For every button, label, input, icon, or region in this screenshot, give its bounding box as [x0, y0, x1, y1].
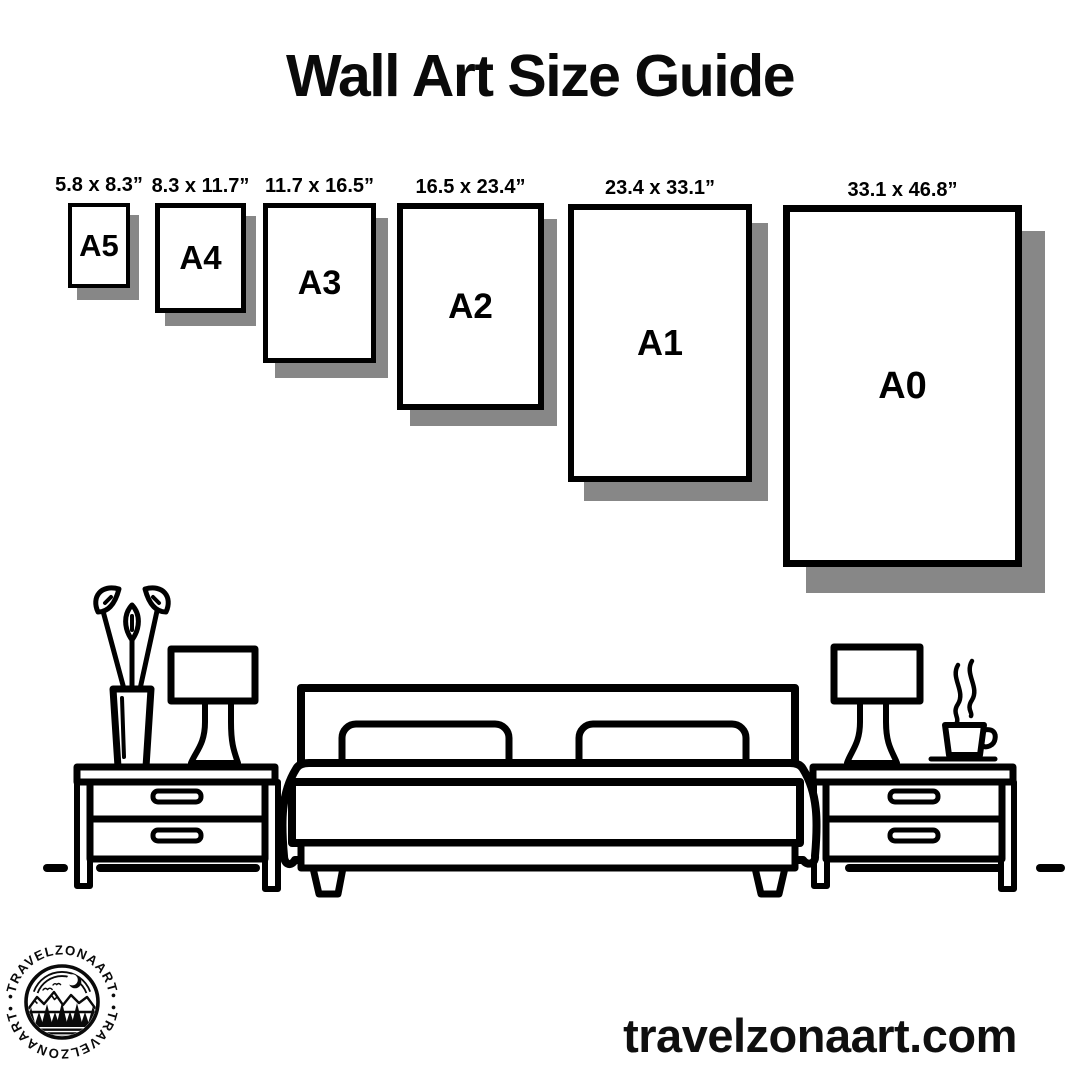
- size-frames: 5.8 x 8.3” A5 8.3 x 11.7” A4 11.7 x 16.5…: [0, 0, 1080, 620]
- cup-body: [945, 725, 984, 755]
- mattress-sheet: [292, 782, 800, 843]
- frame-dimensions-label: 16.5 x 23.4”: [415, 176, 525, 199]
- bed-leg-left: [313, 868, 343, 894]
- wall-art-size-guide-poster: Wall Art Size Guide 5.8 x 8.3” A5 8.3 x …: [0, 0, 1080, 1080]
- nightstand-top: [77, 767, 275, 782]
- bed: [282, 688, 816, 894]
- drawer-handle: [153, 830, 201, 841]
- size-frame-a0: 33.1 x 46.8” A0: [783, 205, 1022, 567]
- bedroom-illustration: [0, 560, 1080, 920]
- drawer-handle: [890, 791, 938, 802]
- table-lamp-right: [834, 647, 920, 763]
- size-frame-a4: 8.3 x 11.7” A4: [155, 203, 246, 313]
- frame-dimensions-label: 23.4 x 33.1”: [605, 177, 715, 200]
- frame-size-code: A2: [448, 287, 493, 327]
- lamp-shade: [171, 649, 255, 701]
- website-text: travelzonaart.com: [560, 1008, 1080, 1063]
- nightstand-top: [813, 767, 1013, 782]
- frame-dimensions-label: 33.1 x 46.8”: [847, 179, 957, 202]
- lamp-base: [191, 701, 238, 763]
- size-frame-a2: 16.5 x 23.4” A2: [397, 203, 544, 410]
- vase-body: [113, 689, 151, 767]
- vase-highlight: [122, 698, 124, 757]
- steam-lines: [956, 661, 975, 722]
- frame-size-code: A5: [79, 228, 119, 264]
- table-lamp-left: [171, 649, 255, 763]
- drawer-handle: [890, 830, 938, 841]
- lamp-base: [847, 701, 897, 763]
- frame-dimensions-label: 5.8 x 8.3”: [55, 174, 143, 197]
- size-frame-a3: 11.7 x 16.5” A3: [263, 203, 376, 363]
- size-frame-a1: 23.4 x 33.1” A1: [568, 204, 752, 482]
- frame-size-code: A4: [179, 239, 221, 277]
- size-frame-a5: 5.8 x 8.3” A5: [68, 203, 130, 288]
- frame-dimensions-label: 8.3 x 11.7”: [152, 175, 250, 198]
- coffee-cup: [931, 661, 995, 759]
- bed-leg-right: [755, 868, 785, 894]
- frame-dimensions-label: 11.7 x 16.5”: [265, 175, 374, 198]
- frame-size-code: A1: [637, 322, 683, 364]
- lamp-shade: [834, 647, 920, 701]
- bed-base: [301, 843, 795, 868]
- brand-logo: •TRAVELZONAART• •TRAVELZONAART•: [4, 932, 126, 1076]
- frame-size-code: A3: [298, 264, 341, 303]
- drawer-handle: [153, 791, 201, 802]
- frame-size-code: A0: [878, 365, 927, 408]
- vase-with-plant: [96, 588, 168, 767]
